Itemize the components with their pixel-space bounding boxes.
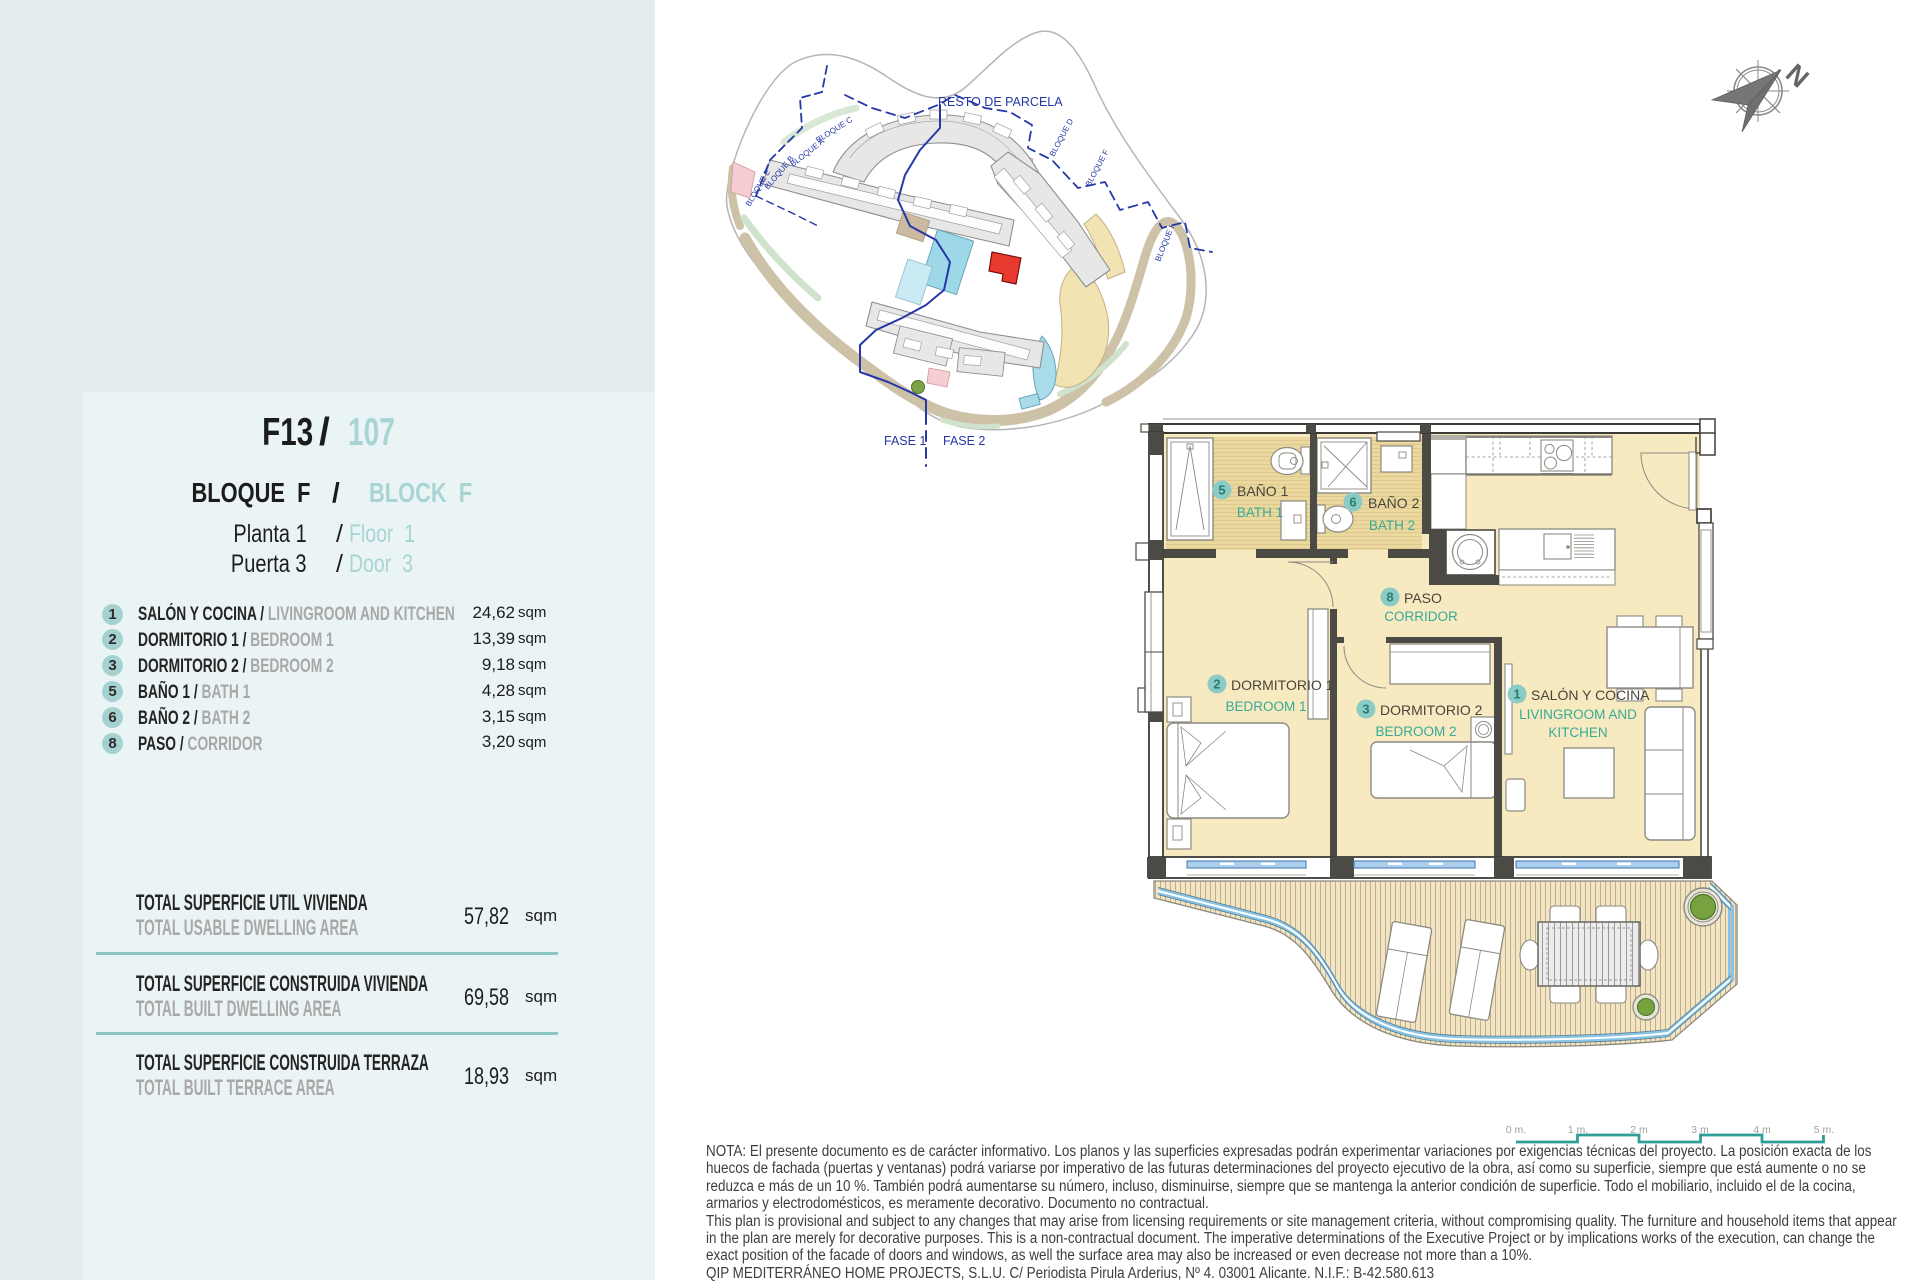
- svg-text:N: N: [1780, 58, 1815, 93]
- svg-text:BATH 2: BATH 2: [1369, 518, 1415, 533]
- svg-text:BAÑO 1: BAÑO 1: [1237, 483, 1289, 499]
- svg-text:LIVINGROOM AND: LIVINGROOM AND: [1519, 707, 1637, 722]
- svg-text:BAÑO 2: BAÑO 2: [1368, 495, 1420, 511]
- svg-text:PASO: PASO: [1404, 590, 1442, 606]
- svg-text:SALÓN Y COCINA: SALÓN Y COCINA: [1531, 687, 1650, 703]
- svg-text:5: 5: [1218, 483, 1225, 498]
- svg-text:1: 1: [1513, 687, 1520, 702]
- svg-text:CORRIDOR: CORRIDOR: [1384, 609, 1458, 624]
- svg-text:FASE 1: FASE 1: [884, 434, 926, 448]
- svg-text:8: 8: [1386, 590, 1393, 605]
- svg-text:BATH 1: BATH 1: [1237, 505, 1283, 520]
- svg-text:5 m.: 5 m.: [1814, 1124, 1834, 1136]
- svg-text:FASE 2: FASE 2: [943, 434, 985, 448]
- svg-text:1 m.: 1 m.: [1568, 1124, 1588, 1136]
- svg-text:BEDROOM 1: BEDROOM 1: [1225, 699, 1306, 714]
- svg-text:KITCHEN: KITCHEN: [1548, 725, 1607, 740]
- svg-text:3: 3: [1362, 702, 1369, 717]
- svg-text:2 m: 2 m: [1630, 1124, 1648, 1136]
- svg-text:6: 6: [1349, 495, 1356, 510]
- svg-text:DORMITORIO 2: DORMITORIO 2: [1380, 702, 1483, 718]
- svg-text:4 m: 4 m: [1753, 1124, 1771, 1136]
- svg-text:DORMITORIO 1: DORMITORIO 1: [1231, 677, 1334, 693]
- svg-text:RESTO DE PARCELA: RESTO DE PARCELA: [938, 95, 1063, 109]
- svg-text:2: 2: [1213, 677, 1220, 692]
- svg-text:BEDROOM 2: BEDROOM 2: [1375, 724, 1456, 739]
- svg-text:3 m: 3 m: [1691, 1124, 1709, 1136]
- svg-text:0 m.: 0 m.: [1506, 1124, 1526, 1136]
